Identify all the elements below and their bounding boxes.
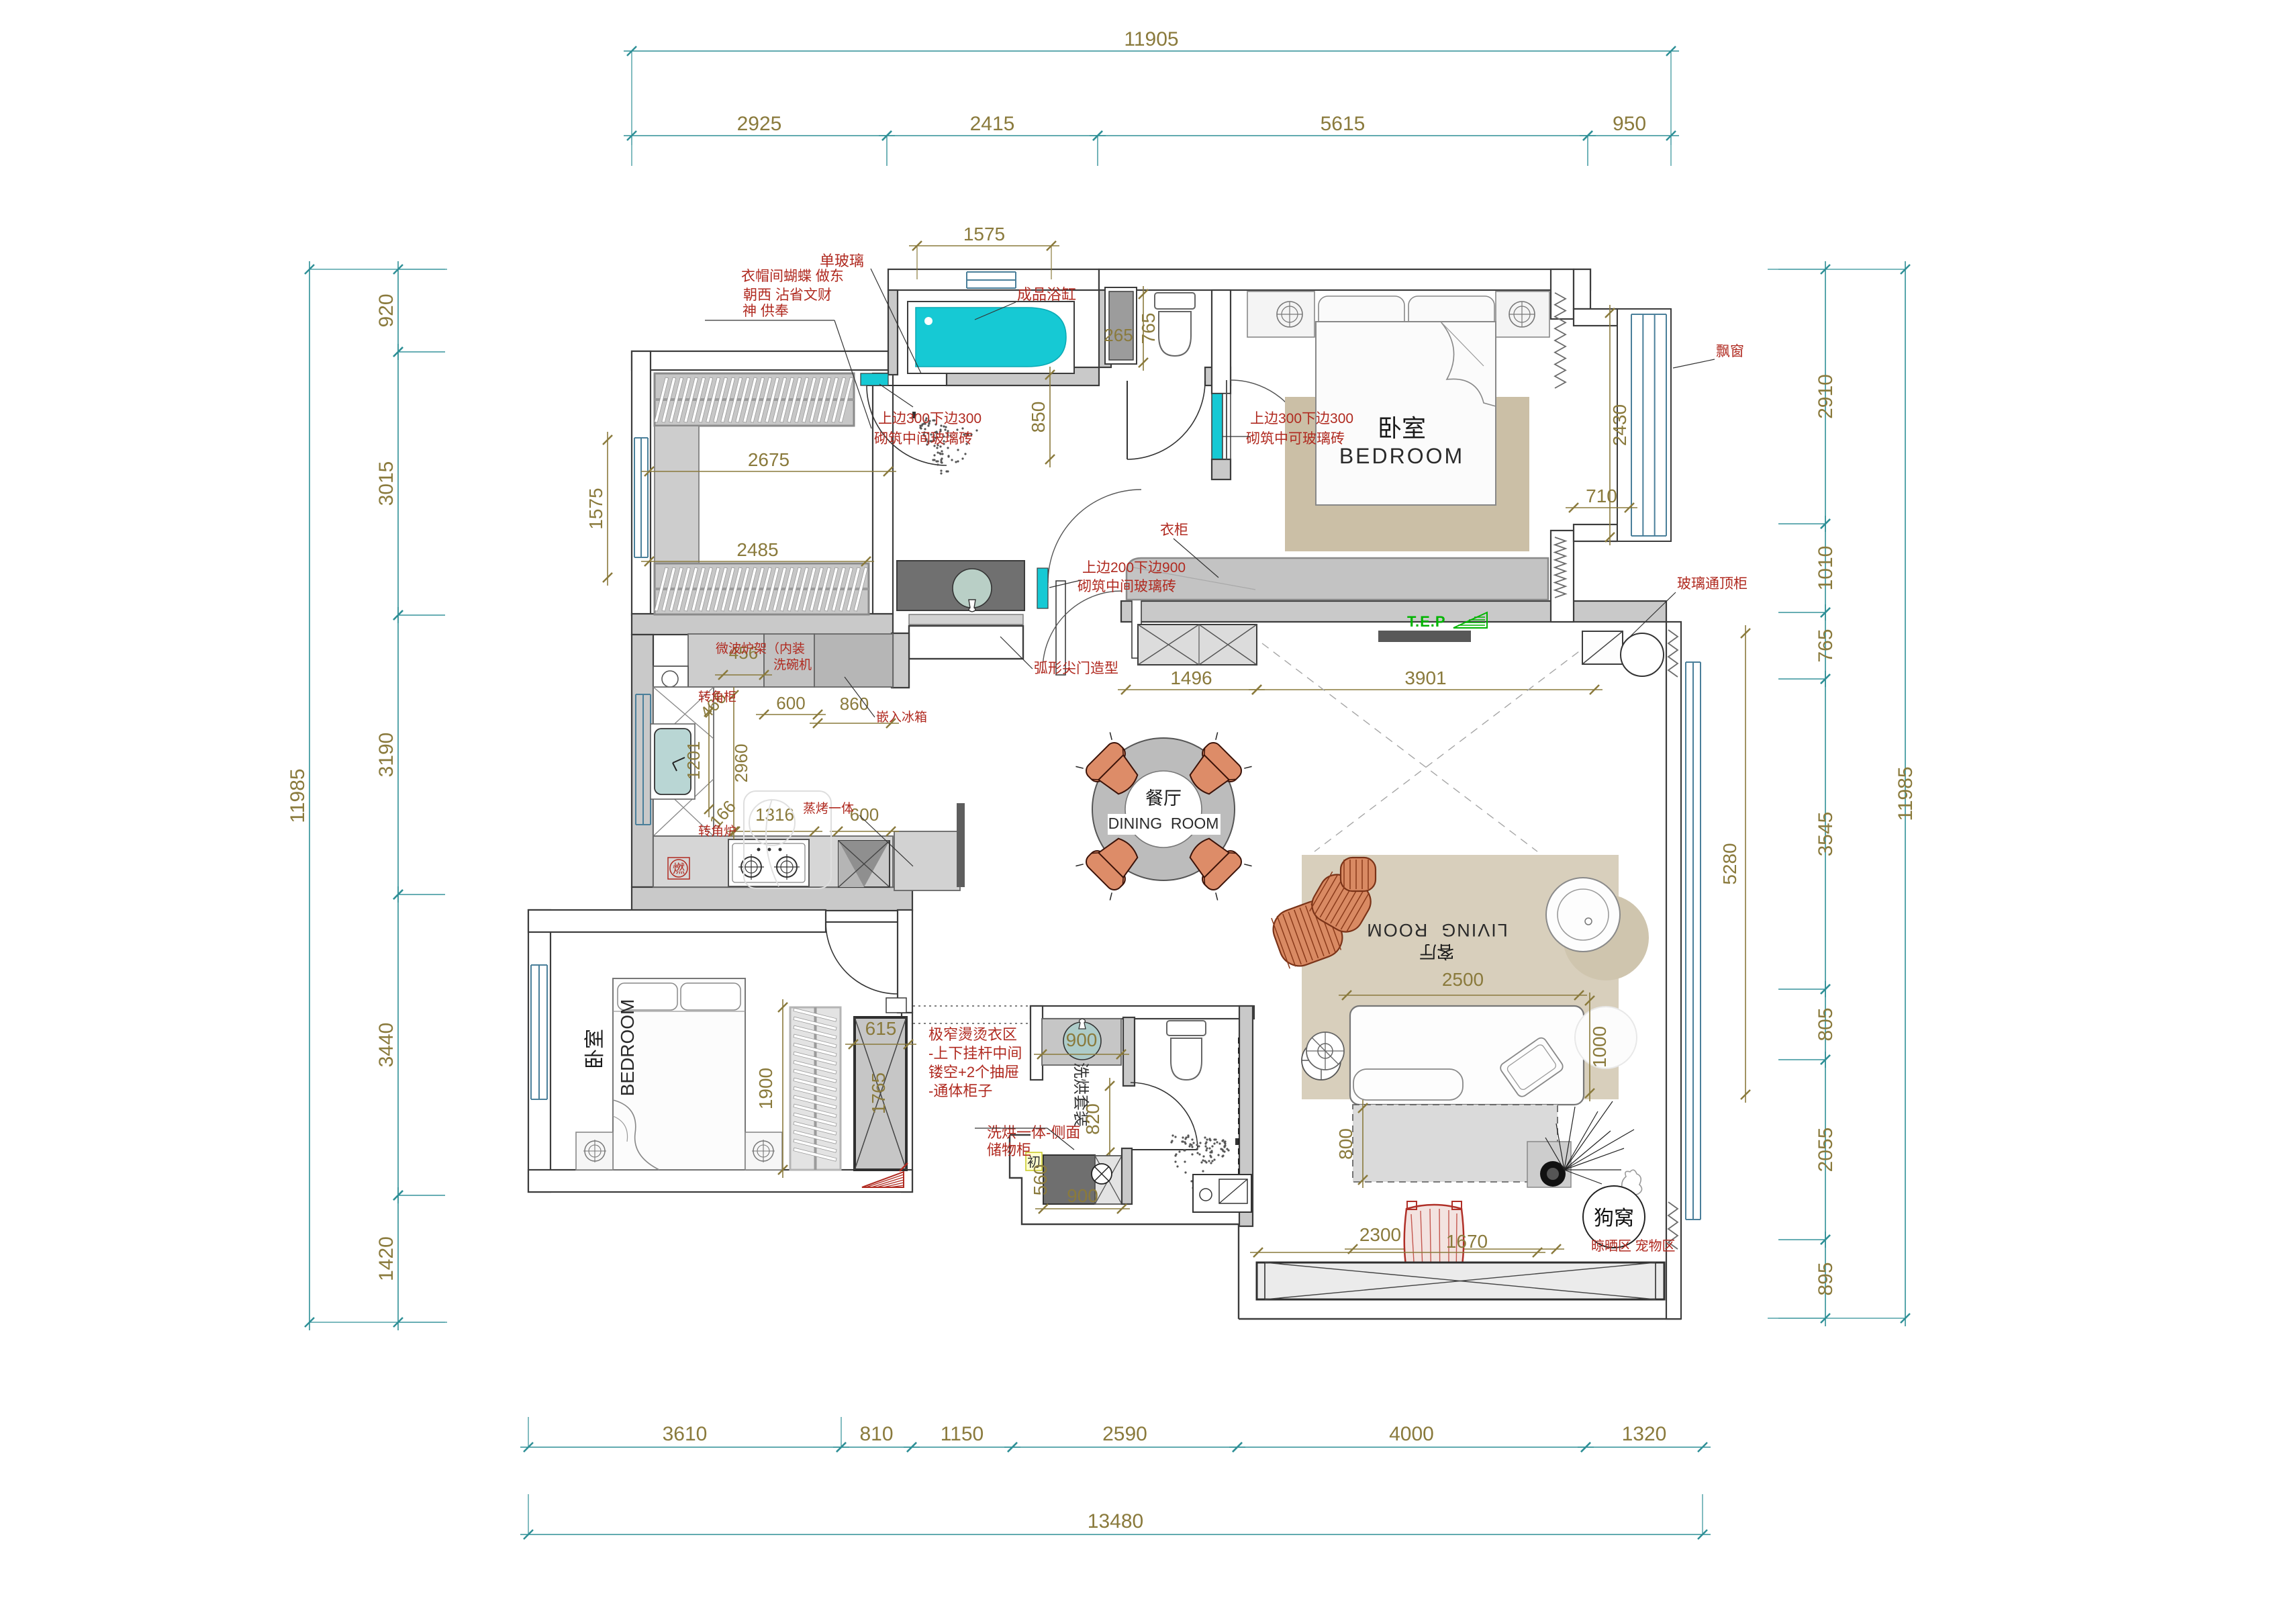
svg-text:765: 765 <box>1138 313 1159 345</box>
svg-text:洗碗机: 洗碗机 <box>773 657 812 672</box>
svg-text:储物柜: 储物柜 <box>987 1142 1031 1158</box>
svg-text:765: 765 <box>1815 629 1837 662</box>
svg-text:1000: 1000 <box>1589 1026 1610 1068</box>
svg-text:560: 560 <box>1030 1164 1051 1196</box>
svg-text:5280: 5280 <box>1719 843 1740 884</box>
svg-text:2430: 2430 <box>1609 404 1630 446</box>
svg-text:衣帽间蝴蝶 做东: 衣帽间蝴蝶 做东 <box>741 269 844 284</box>
svg-text:砌筑中间玻璃砖: 砌筑中间玻璃砖 <box>874 431 973 447</box>
svg-text:2675: 2675 <box>748 449 790 470</box>
svg-text:狗窝: 狗窝 <box>1594 1207 1634 1230</box>
svg-text:1010: 1010 <box>1815 546 1837 591</box>
svg-text:2500: 2500 <box>1442 969 1484 990</box>
svg-text:燃: 燃 <box>673 862 685 876</box>
svg-text:2055: 2055 <box>1815 1128 1837 1173</box>
svg-text:2300: 2300 <box>1359 1224 1401 1245</box>
svg-text:T.E.P: T.E.P <box>1407 613 1446 630</box>
svg-text:神 供奉: 神 供奉 <box>743 304 789 319</box>
svg-text:265: 265 <box>1104 325 1133 345</box>
svg-text:3610: 3610 <box>663 1423 708 1445</box>
svg-text:2485: 2485 <box>736 539 778 560</box>
svg-text:1150: 1150 <box>941 1423 984 1445</box>
svg-text:-通体柜子: -通体柜子 <box>928 1083 992 1099</box>
svg-text:3190: 3190 <box>375 733 397 778</box>
svg-text:LIVING ROOM: LIVING ROOM <box>1366 920 1508 940</box>
svg-text:895: 895 <box>1815 1262 1837 1295</box>
svg-text:710: 710 <box>1586 486 1617 506</box>
svg-text:蒸烤一体: 蒸烤一体 <box>803 801 854 816</box>
svg-text:900: 900 <box>1067 1185 1098 1206</box>
svg-text:2910: 2910 <box>1815 374 1837 419</box>
svg-text:11985: 11985 <box>287 768 309 823</box>
svg-text:2960: 2960 <box>731 744 751 783</box>
svg-text:玻璃通顶柜: 玻璃通顶柜 <box>1677 576 1748 592</box>
svg-text:砌筑中可玻璃砖: 砌筑中可玻璃砖 <box>1246 431 1345 447</box>
svg-text:600: 600 <box>850 805 879 825</box>
svg-text:850: 850 <box>1028 402 1049 433</box>
svg-text:1201: 1201 <box>683 741 704 780</box>
svg-text:2415: 2415 <box>970 113 1015 135</box>
svg-text:砌筑中间玻璃砖: 砌筑中间玻璃砖 <box>1078 579 1176 594</box>
svg-text:上边200下边900: 上边200下边900 <box>1082 560 1186 576</box>
svg-text:卧室: 卧室 <box>584 1029 606 1069</box>
svg-text:4000: 4000 <box>1389 1423 1434 1445</box>
svg-text:1765: 1765 <box>868 1072 889 1114</box>
svg-text:800: 800 <box>1335 1128 1356 1160</box>
svg-text:2925: 2925 <box>737 113 782 135</box>
svg-text:成品浴缸: 成品浴缸 <box>1017 286 1076 303</box>
svg-text:920: 920 <box>375 293 397 327</box>
svg-text:1575: 1575 <box>585 488 606 529</box>
svg-text:820: 820 <box>1082 1103 1103 1135</box>
svg-text:转角炉: 转角炉 <box>698 824 736 839</box>
svg-text:600: 600 <box>776 693 805 713</box>
svg-text:镂空+2个抽屉: 镂空+2个抽屉 <box>928 1064 1019 1081</box>
svg-text:615: 615 <box>865 1018 897 1039</box>
svg-text:客厅: 客厅 <box>1419 942 1454 962</box>
svg-text:飘窗: 飘窗 <box>1716 344 1744 359</box>
svg-text:810: 810 <box>859 1423 893 1445</box>
svg-text:3545: 3545 <box>1815 812 1837 857</box>
svg-text:1900: 1900 <box>755 1068 776 1109</box>
svg-text:2590: 2590 <box>1102 1423 1147 1445</box>
svg-text:3440: 3440 <box>375 1023 397 1068</box>
svg-text:BEDROOM: BEDROOM <box>617 999 638 1097</box>
svg-text:1670: 1670 <box>1446 1231 1488 1252</box>
svg-text:上边300下边300: 上边300下边300 <box>878 411 982 426</box>
svg-text:微波炉架（内装: 微波炉架（内装 <box>716 641 805 656</box>
svg-text:3901: 3901 <box>1404 668 1446 688</box>
svg-text:BEDROOM: BEDROOM <box>1339 444 1464 468</box>
svg-text:1320: 1320 <box>1622 1423 1667 1445</box>
svg-text:洗烘一体-侧面: 洗烘一体-侧面 <box>987 1124 1080 1141</box>
svg-text:1575: 1575 <box>963 224 1005 244</box>
svg-text:极窄燙烫衣区: 极窄燙烫衣区 <box>928 1026 1017 1043</box>
svg-text:-上下挂杆中间: -上下挂杆中间 <box>928 1045 1022 1062</box>
svg-text:单玻璃: 单玻璃 <box>820 252 864 269</box>
svg-text:餐厅: 餐厅 <box>1145 788 1182 809</box>
svg-text:1496: 1496 <box>1170 668 1212 688</box>
svg-text:转角柜: 转角柜 <box>698 690 736 704</box>
svg-text:11905: 11905 <box>1124 28 1178 50</box>
svg-text:13480: 13480 <box>1088 1510 1143 1532</box>
svg-text:弧形尖门造型: 弧形尖门造型 <box>1034 661 1118 676</box>
svg-text:上边300下边300: 上边300下边300 <box>1250 411 1353 426</box>
svg-text:朝西 沾省文财: 朝西 沾省文财 <box>743 287 832 303</box>
svg-text:805: 805 <box>1815 1007 1837 1041</box>
svg-text:11985: 11985 <box>1895 766 1917 821</box>
svg-text:950: 950 <box>1613 113 1646 135</box>
svg-text:1420: 1420 <box>375 1236 397 1281</box>
svg-text:嵌入冰箱: 嵌入冰箱 <box>876 710 927 725</box>
svg-text:晾晒区 宠物区: 晾晒区 宠物区 <box>1591 1238 1676 1254</box>
svg-text:3015: 3015 <box>375 461 397 506</box>
svg-text:卧室: 卧室 <box>1378 414 1426 442</box>
svg-text:900: 900 <box>1066 1029 1098 1050</box>
svg-text:DINING ROOM: DINING ROOM <box>1108 815 1219 832</box>
svg-text:5615: 5615 <box>1321 113 1366 135</box>
svg-text:衣柜: 衣柜 <box>1160 522 1188 538</box>
